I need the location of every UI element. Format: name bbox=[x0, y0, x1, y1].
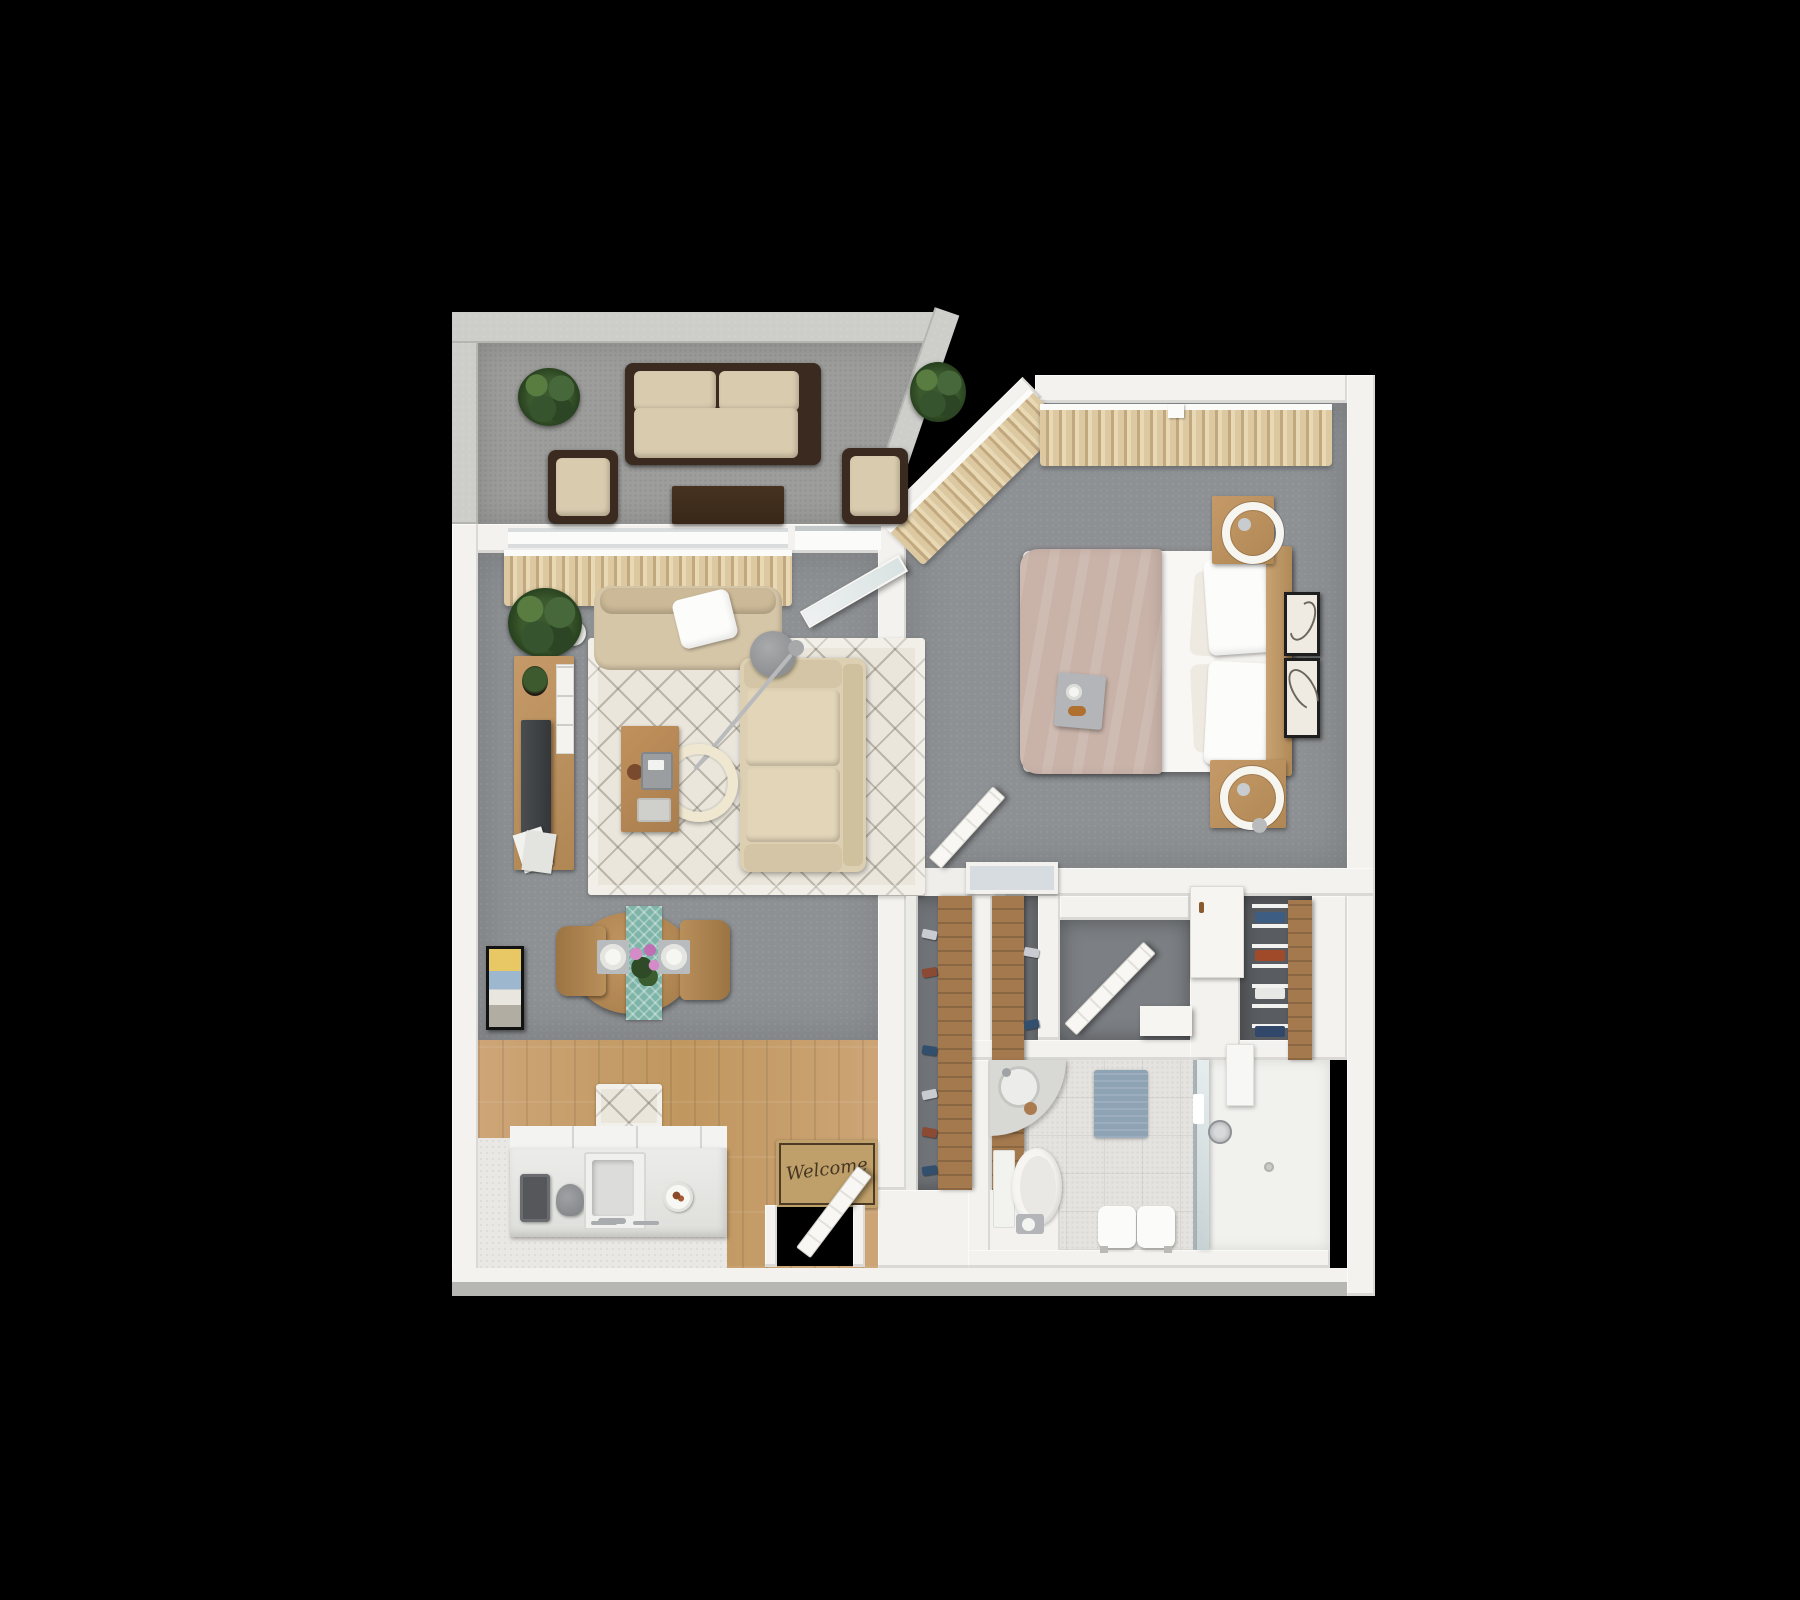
kitchen-sink-basin bbox=[592, 1160, 634, 1216]
towel-bench-towel bbox=[1098, 1206, 1136, 1248]
wall-living-closet bbox=[878, 896, 906, 1190]
breakfast-tray bbox=[1054, 672, 1107, 730]
ring-lamp-core bbox=[1237, 783, 1250, 796]
framed-line-art bbox=[1284, 592, 1320, 656]
kitchen-rug bbox=[596, 1084, 662, 1128]
wall-closet-c-right bbox=[1312, 896, 1347, 1060]
shower-floor bbox=[1203, 1060, 1330, 1250]
coffee-maker-icon bbox=[641, 752, 673, 790]
welcome-mat-text: Welcome bbox=[773, 1134, 882, 1206]
folded-clothes-icon bbox=[1255, 988, 1285, 999]
kitchen-upper-cabinets bbox=[510, 1126, 727, 1148]
balcony-parapet-top bbox=[452, 312, 948, 343]
balcony-parapet-left bbox=[452, 312, 478, 524]
bed-pillow bbox=[1203, 556, 1274, 656]
dinner-plate bbox=[661, 944, 687, 970]
coffee-table-tray bbox=[637, 798, 671, 822]
living-sofa-back bbox=[843, 664, 863, 866]
toaster-icon bbox=[520, 1174, 550, 1222]
living-window-frame bbox=[508, 528, 788, 548]
entry-door-jamb bbox=[853, 1205, 865, 1267]
wall-vestibule-top bbox=[1060, 896, 1190, 920]
closet-b-shelf-panel bbox=[992, 896, 1024, 1190]
stand-mixer-icon bbox=[556, 1184, 584, 1216]
kitchen-faucet-icon bbox=[598, 1218, 626, 1224]
curtain-rod-bracket bbox=[1168, 404, 1184, 418]
tray-croissant-icon bbox=[1068, 706, 1086, 716]
closet-a-shelf-panel bbox=[938, 896, 972, 1190]
dinner-plate bbox=[600, 944, 626, 970]
patio-sofa-back-cushion bbox=[634, 371, 716, 411]
linen-cabinet bbox=[1190, 886, 1244, 978]
bed-duvet bbox=[1020, 549, 1162, 774]
vanity-stool-icon bbox=[1024, 1102, 1037, 1115]
plate-of-food bbox=[663, 1182, 693, 1212]
bench-leg-icon bbox=[1100, 1246, 1108, 1253]
wall-bathroom-bottom bbox=[968, 1250, 1330, 1268]
patio-coffee-table bbox=[672, 486, 784, 524]
entry-door-jamb bbox=[765, 1205, 777, 1267]
living-wall-art bbox=[486, 946, 524, 1030]
living-sofa-cushion bbox=[746, 690, 840, 766]
shower-head-icon bbox=[1208, 1120, 1232, 1144]
floor-plan-scene: Welcome bbox=[0, 0, 1800, 1600]
wall-left-outer bbox=[452, 524, 478, 1296]
coffee-maker-screen bbox=[648, 760, 664, 770]
shower-shelf bbox=[1226, 1044, 1254, 1106]
patio-sofa-back-cushion bbox=[719, 371, 799, 411]
folded-clothes-icon bbox=[1255, 912, 1285, 923]
flower-centerpiece-icon bbox=[624, 940, 664, 986]
towel-bench-towel bbox=[1137, 1206, 1175, 1248]
toilet-paper-roll bbox=[1022, 1218, 1035, 1231]
floor-mirror bbox=[966, 862, 1058, 894]
toilet-seat bbox=[1020, 1156, 1056, 1218]
patio-armchair-cushion bbox=[556, 458, 610, 516]
wall-vestibule-left bbox=[1038, 896, 1060, 1040]
patio-armchair-cushion bbox=[850, 456, 900, 516]
balcony-door-frame bbox=[795, 526, 881, 550]
cabinet-handle-icon bbox=[1199, 902, 1204, 913]
shower-glass-screen bbox=[1197, 1060, 1209, 1250]
arc-lamp-base bbox=[788, 640, 804, 656]
balcony-plant-icon bbox=[518, 368, 580, 426]
closet-a-sliding-door bbox=[906, 896, 918, 1190]
shower-drain-icon bbox=[1264, 1162, 1274, 1172]
wall-bedroom-top bbox=[1035, 375, 1347, 403]
bed-pillow bbox=[1203, 660, 1272, 767]
tray-cup-icon bbox=[1066, 684, 1082, 700]
folded-clothes-icon bbox=[1255, 950, 1285, 961]
living-sofa-cushion bbox=[746, 768, 840, 842]
folded-clothes-icon bbox=[1255, 1026, 1285, 1037]
shoe-icon bbox=[921, 1045, 937, 1056]
bench-leg-icon bbox=[1164, 1246, 1172, 1253]
console-plant-pot bbox=[522, 666, 548, 696]
sink-faucet-icon bbox=[1002, 1068, 1011, 1077]
ring-lamp-core bbox=[1238, 518, 1251, 531]
wall-right-outer bbox=[1347, 375, 1375, 1296]
bathroom-threshold-step bbox=[1140, 1006, 1192, 1036]
tv-console-drawers bbox=[556, 664, 574, 754]
ring-lamp-icon bbox=[1222, 502, 1284, 564]
living-sofa-arm bbox=[744, 844, 842, 872]
bath-mat bbox=[1094, 1070, 1148, 1138]
living-plant-icon bbox=[508, 588, 582, 658]
nightstand-ball-icon bbox=[1252, 818, 1267, 833]
magazine bbox=[521, 830, 556, 874]
patio-sofa-seat-cushion bbox=[634, 408, 798, 458]
balcony-corner-plant-icon bbox=[910, 362, 966, 422]
bedroom-top-curtains bbox=[1040, 404, 1332, 466]
shower-hand-towel bbox=[1193, 1094, 1204, 1124]
ring-lamp-icon bbox=[1220, 766, 1284, 830]
framed-line-art bbox=[1284, 658, 1320, 738]
closet-c-side-panel bbox=[1288, 900, 1312, 1060]
wall-bottom-outer bbox=[452, 1268, 1375, 1296]
